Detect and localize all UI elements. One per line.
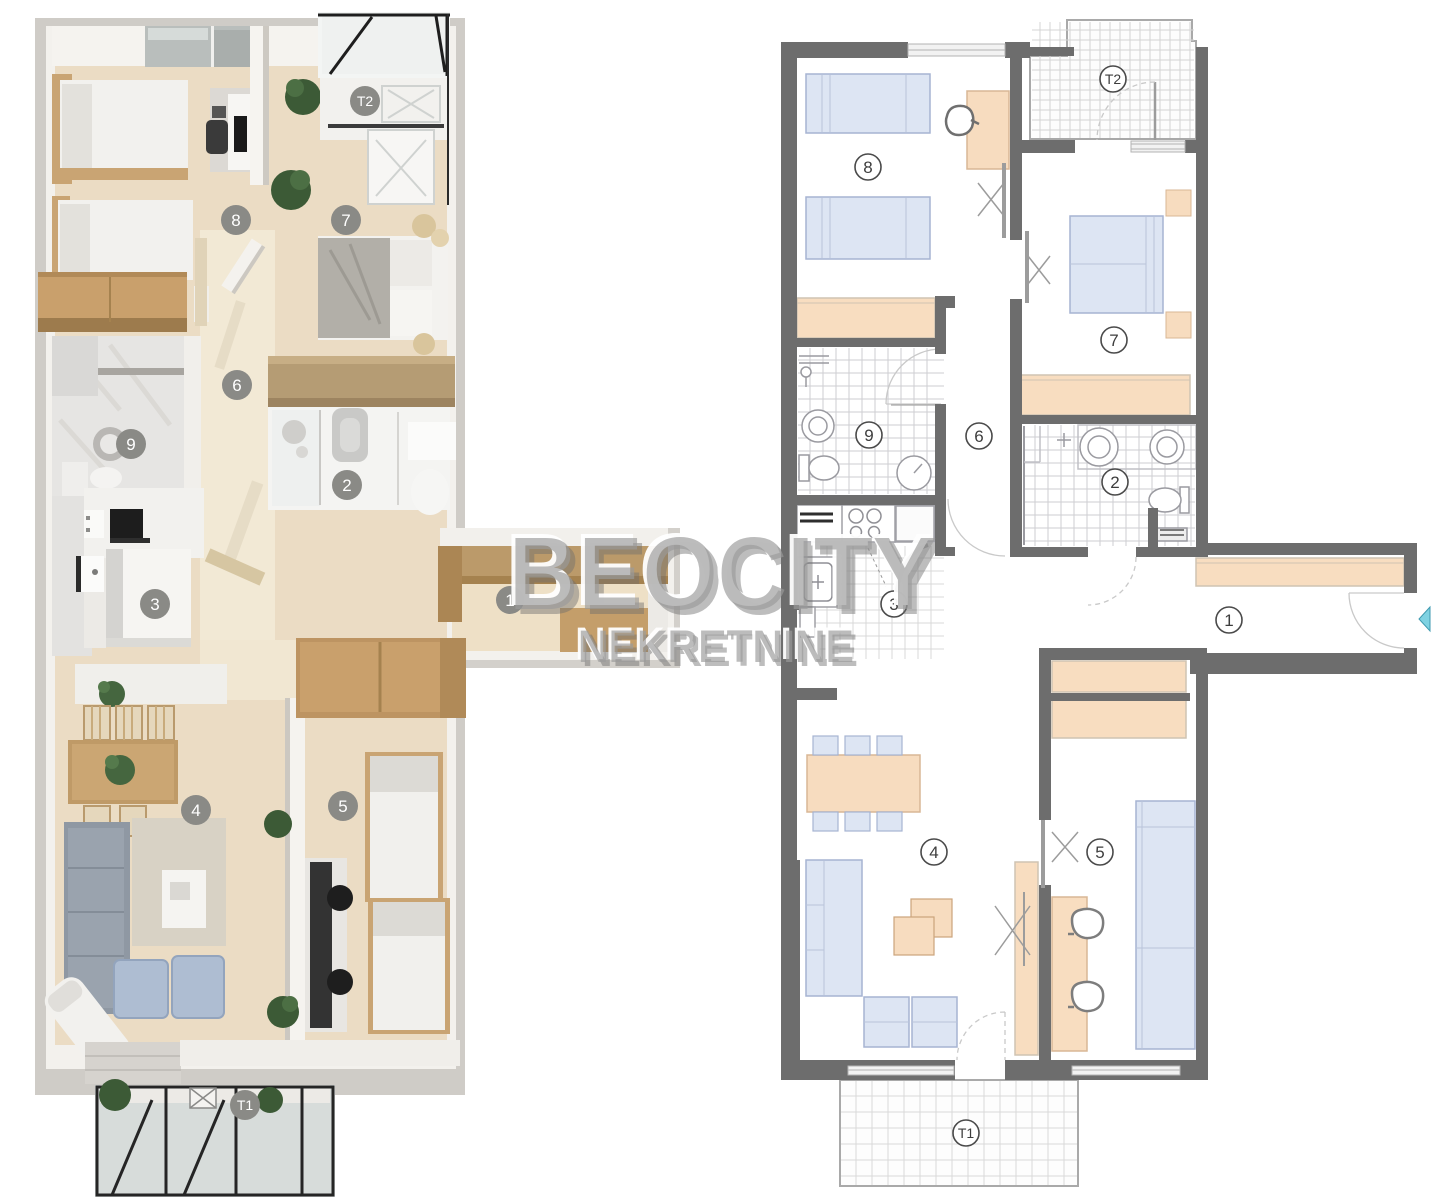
- svg-text:4: 4: [191, 801, 200, 820]
- svg-text:7: 7: [341, 211, 350, 230]
- svg-text:T1: T1: [958, 1125, 975, 1141]
- svg-text:T2: T2: [357, 93, 374, 109]
- svg-text:2: 2: [342, 476, 351, 495]
- svg-text:5: 5: [338, 797, 347, 816]
- svg-text:T2: T2: [1105, 71, 1122, 87]
- svg-text:7: 7: [1109, 331, 1118, 350]
- svg-text:NEKRETNINE: NEKRETNINE: [578, 621, 854, 672]
- svg-text:6: 6: [974, 427, 983, 446]
- svg-text:BEOCITY: BEOCITY: [509, 516, 937, 631]
- svg-text:6: 6: [232, 376, 241, 395]
- svg-text:8: 8: [863, 158, 872, 177]
- svg-text:1: 1: [1224, 611, 1233, 630]
- svg-text:3: 3: [150, 595, 159, 614]
- svg-text:4: 4: [929, 843, 938, 862]
- svg-text:2: 2: [1110, 473, 1119, 492]
- svg-text:9: 9: [126, 435, 135, 454]
- svg-text:5: 5: [1095, 843, 1104, 862]
- svg-text:9: 9: [864, 426, 873, 445]
- svg-text:T1: T1: [237, 1097, 254, 1113]
- svg-text:8: 8: [231, 211, 240, 230]
